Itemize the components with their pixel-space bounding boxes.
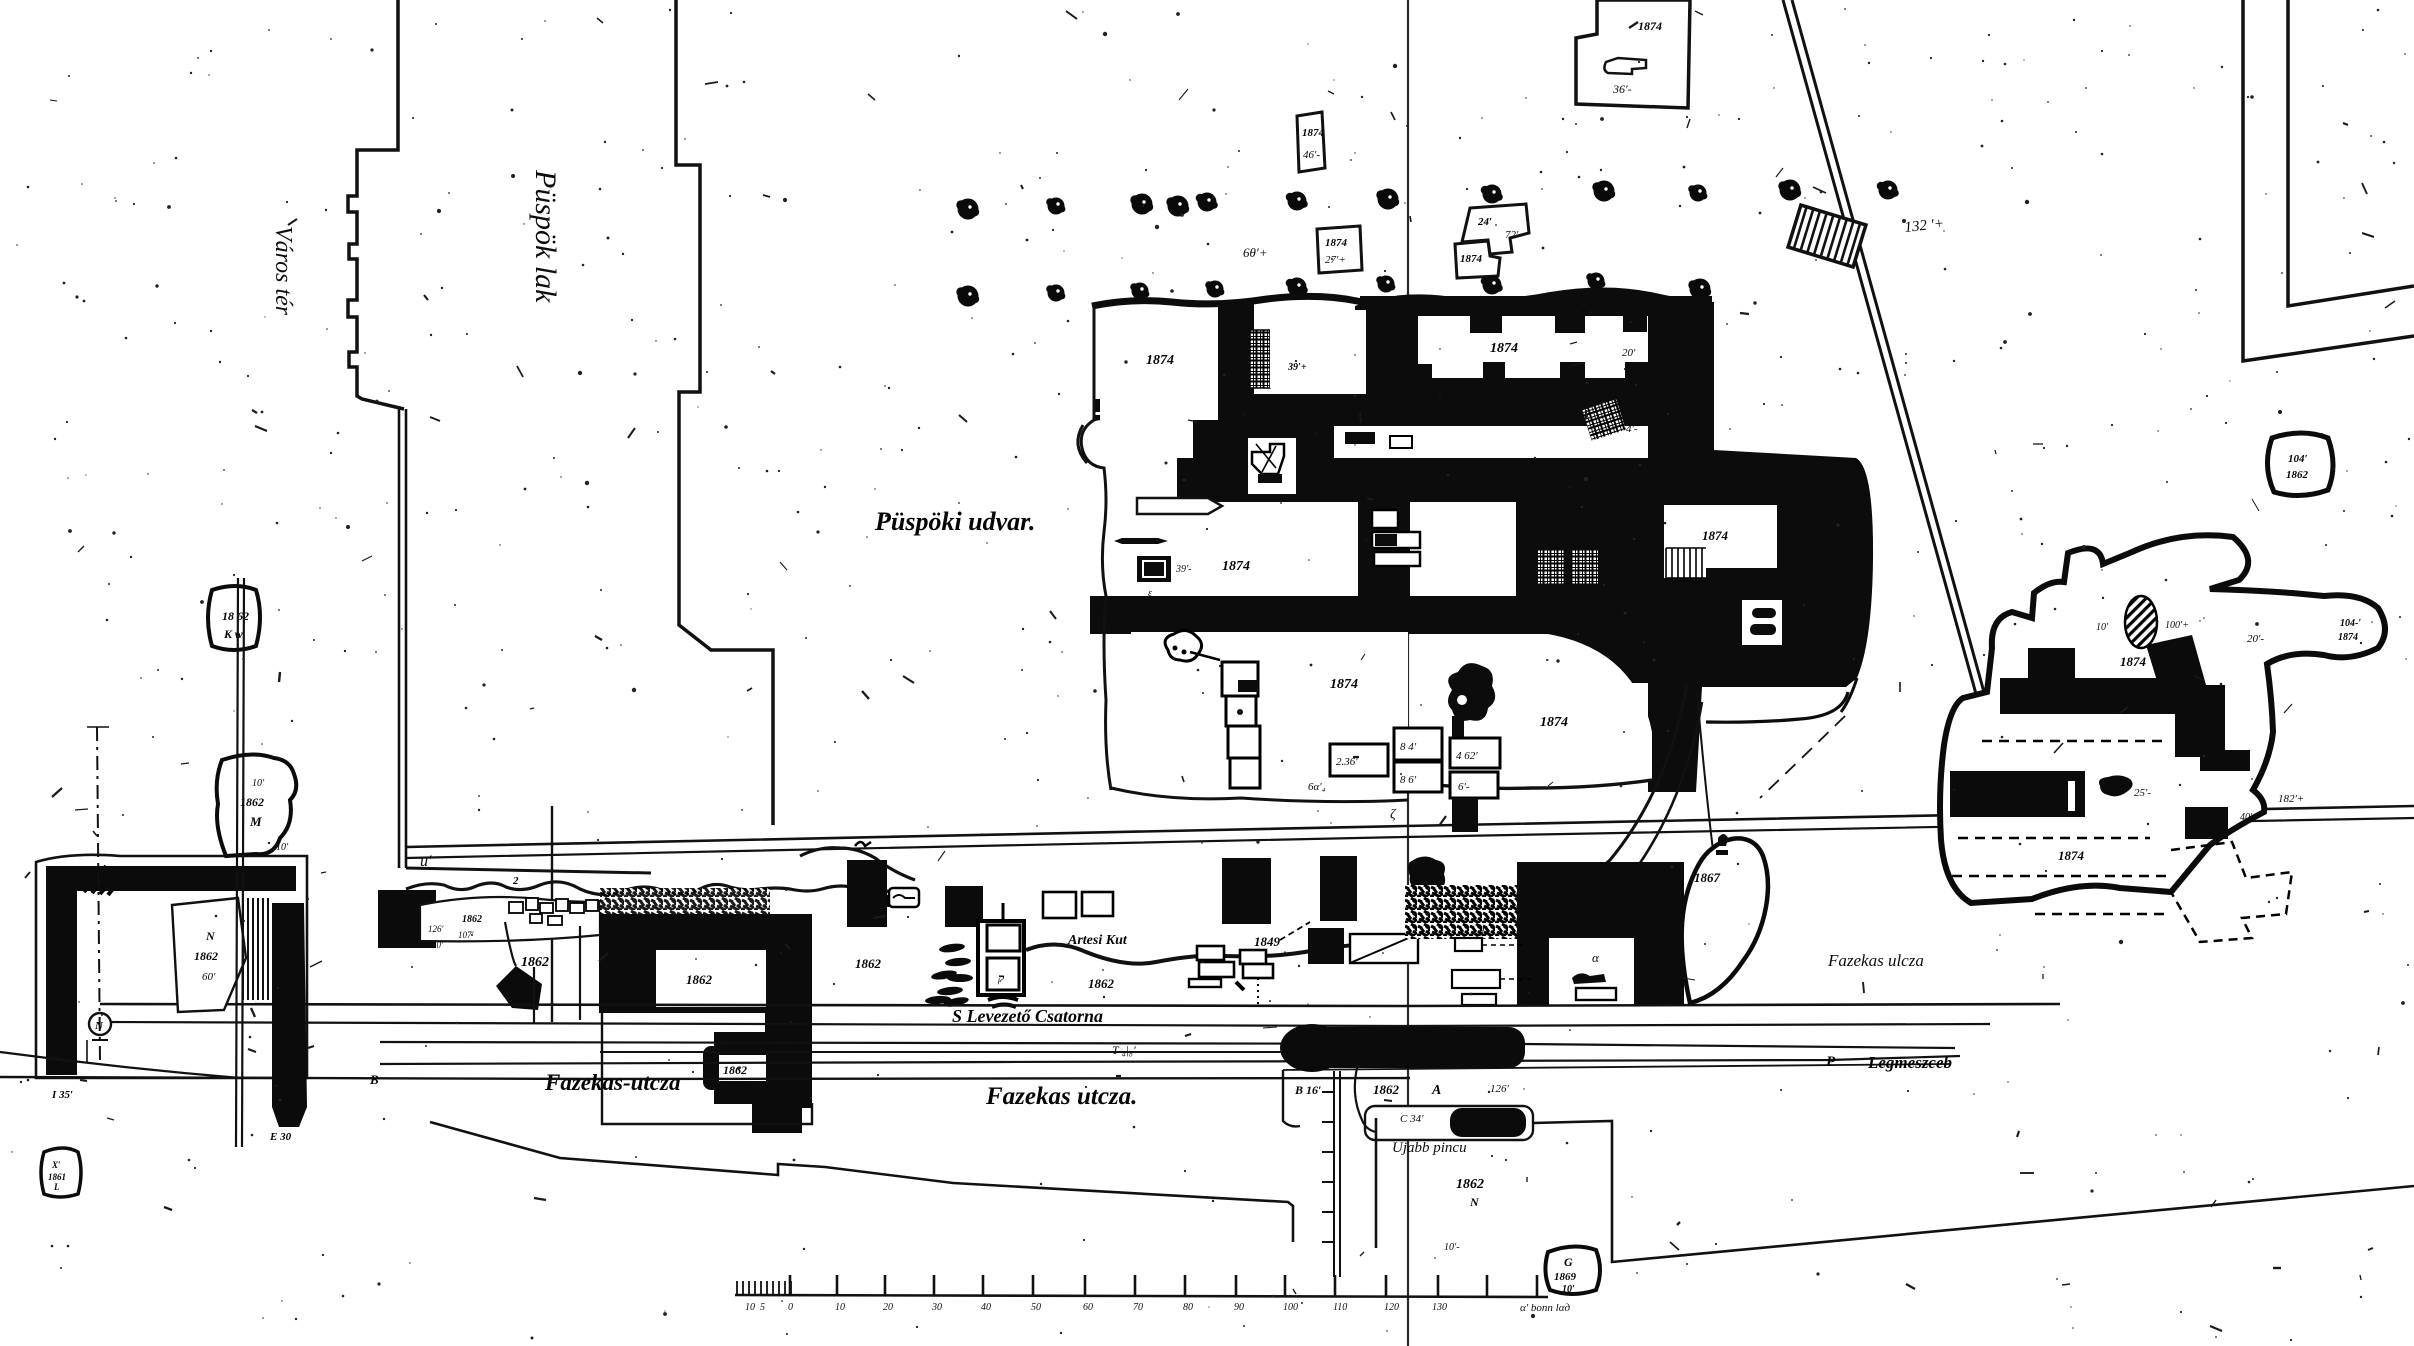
- svg-text:ק: ק: [997, 971, 1005, 985]
- svg-text:Püspöki udvar.: Püspöki udvar.: [874, 507, 1035, 536]
- svg-text:Legmeszceb: Legmeszceb: [1867, 1053, 1952, 1072]
- svg-text:1874: 1874: [1325, 237, 1348, 249]
- svg-text:1874: 1874: [2338, 632, 2358, 643]
- svg-text:1874: 1874: [1638, 19, 1662, 33]
- svg-text:0: 0: [788, 1302, 793, 1313]
- svg-text:1874: 1874: [1146, 353, 1174, 368]
- svg-text:2: 2: [512, 875, 519, 887]
- svg-text:1874: 1874: [2058, 848, 2085, 863]
- svg-text:8 4′: 8 4′: [1400, 741, 1417, 753]
- svg-text:40: 40: [981, 1302, 991, 1313]
- svg-text:ε: ε: [1148, 588, 1152, 599]
- svg-text:Fazekas-utcza: Fazekas-utcza: [544, 1070, 680, 1095]
- svg-text:α′ bonn lαд: α′ bonn lαд: [1520, 1302, 1571, 1314]
- svg-text:1874: 1874: [1330, 677, 1358, 692]
- svg-text:10′-: 10′-: [1444, 1242, 1460, 1253]
- svg-text:1862: 1862: [1088, 976, 1115, 991]
- svg-text:60: 60: [1083, 1302, 1093, 1313]
- svg-text:120: 120: [1384, 1302, 1399, 1313]
- svg-text:1862: 1862: [462, 914, 482, 925]
- svg-text:В 16′: В 16′: [1294, 1083, 1321, 1097]
- svg-text:S Levezető Csatorna: S Levezető Csatorna: [952, 1006, 1103, 1026]
- svg-text:4′-: 4′-: [1626, 423, 1638, 435]
- svg-text:Város tér: Város tér: [270, 226, 296, 316]
- svg-text:6α′₄: 6α′₄: [1308, 781, 1326, 793]
- svg-text:40′: 40′: [2240, 812, 2253, 823]
- svg-text:1874: 1874: [1460, 253, 1483, 265]
- svg-text:110: 110: [1333, 1302, 1347, 1313]
- svg-text:10′: 10′: [252, 778, 265, 789]
- svg-text:T ₄|₈′: T ₄|₈′: [1112, 1043, 1136, 1057]
- svg-text:72′: 72′: [1505, 229, 1519, 241]
- svg-text:1862: 1862: [1456, 1177, 1484, 1192]
- svg-text:N: N: [205, 929, 216, 943]
- svg-text:1862: 1862: [686, 972, 713, 987]
- svg-text:80: 80: [1183, 1302, 1193, 1313]
- svg-text:126′: 126′: [428, 924, 445, 934]
- svg-text:39′+: 39′+: [1287, 362, 1307, 373]
- svg-text:1849: 1849: [1254, 934, 1281, 949]
- svg-text:1874: 1874: [1302, 127, 1325, 139]
- svg-text:4 62′: 4 62′: [1456, 750, 1478, 762]
- svg-text:182′+: 182′+: [2278, 793, 2304, 805]
- svg-text:1862: 1862: [723, 1063, 747, 1077]
- svg-text:1874: 1874: [1490, 341, 1518, 356]
- svg-text:8 6′: 8 6′: [1400, 774, 1417, 786]
- svg-text:1874: 1874: [1540, 715, 1568, 730]
- svg-text:Fazekas ulcza: Fazekas ulcza: [1827, 951, 1924, 970]
- svg-text:100′+: 100′+: [2165, 620, 2189, 631]
- svg-text:10′: 10′: [2096, 622, 2109, 633]
- svg-text:C 34′: C 34′: [1400, 1113, 1424, 1125]
- svg-text:1861: 1861: [48, 1172, 66, 1182]
- svg-text:5: 5: [760, 1302, 765, 1313]
- svg-text:30: 30: [931, 1302, 942, 1313]
- svg-text:104′: 104′: [2288, 453, 2308, 465]
- svg-text:60′: 60′: [202, 971, 216, 983]
- svg-text:20′-: 20′-: [2247, 633, 2264, 645]
- svg-text:B: B: [369, 1072, 379, 1087]
- svg-text:L: L: [53, 1182, 60, 1192]
- svg-text:X′: X′: [51, 1160, 61, 1170]
- svg-text:d: d: [1478, 925, 1485, 939]
- svg-text:A: A: [1431, 1083, 1441, 1098]
- svg-text:3: 3: [1173, 204, 1179, 215]
- svg-text:70: 70: [1133, 1302, 1143, 1313]
- svg-text:N: N: [1469, 1195, 1480, 1209]
- svg-text:10: 10: [835, 1302, 845, 1313]
- svg-text:u′: u′: [420, 853, 432, 870]
- svg-text:M: M: [249, 814, 262, 829]
- svg-text:1862: 1862: [855, 956, 882, 971]
- svg-text:Fazekas utcza.: Fazekas utcza.: [985, 1083, 1137, 1110]
- svg-text:E 30: E 30: [269, 1131, 292, 1143]
- svg-text:27′+: 27′+: [1325, 254, 1346, 266]
- svg-text:Ujabb pincu: Ujabb pincu: [1392, 1140, 1467, 1156]
- svg-text:Artesi Kut: Artesi Kut: [1067, 933, 1128, 948]
- svg-text:130: 130: [1432, 1302, 1447, 1313]
- svg-text:1874: 1874: [1222, 559, 1250, 574]
- svg-text:25′-: 25′-: [2134, 787, 2151, 799]
- svg-text:100: 100: [1283, 1302, 1298, 1313]
- svg-text:10′: 10′: [1562, 1284, 1575, 1295]
- svg-text:I 35′: I 35′: [51, 1089, 73, 1101]
- svg-text:24′: 24′: [1477, 216, 1492, 228]
- svg-text:Püspök lak: Püspök lak: [529, 169, 562, 303]
- svg-text:10′: 10′: [276, 842, 289, 853]
- svg-text:6θ′+: 6θ′+: [1243, 245, 1268, 260]
- svg-text:1862: 1862: [1373, 1082, 1400, 1097]
- svg-text:6′-: 6′-: [1458, 781, 1470, 793]
- svg-text:50: 50: [1031, 1302, 1041, 1313]
- svg-text:K ᴡ: K ᴡ: [223, 627, 243, 641]
- svg-text:P: P: [1826, 1054, 1836, 1070]
- svg-text:1862: 1862: [2286, 469, 2309, 481]
- svg-text:126′: 126′: [1490, 1083, 1510, 1095]
- svg-text:36′-: 36′-: [1612, 82, 1632, 96]
- svg-text:1869: 1869: [1554, 1271, 1577, 1283]
- svg-text:1874: 1874: [2120, 654, 2147, 669]
- svg-text:1874: 1874: [1702, 528, 1729, 543]
- svg-text:90: 90: [1234, 1302, 1244, 1313]
- svg-text:46′-: 46′-: [1303, 149, 1320, 161]
- svg-text:104-′: 104-′: [2340, 618, 2361, 629]
- svg-text:10: 10: [745, 1302, 755, 1313]
- svg-text:39′-: 39′-: [1175, 564, 1192, 575]
- svg-text:20: 20: [883, 1302, 893, 1313]
- svg-text:20′: 20′: [1622, 347, 1636, 359]
- svg-text:10′: 10′: [432, 940, 444, 950]
- svg-text:G: G: [1564, 1255, 1573, 1269]
- svg-text:1867: 1867: [1694, 870, 1721, 885]
- svg-text:α: α: [1592, 950, 1600, 965]
- svg-text:2′₆: 2′₆: [1300, 445, 1312, 457]
- svg-text:1862: 1862: [194, 949, 218, 963]
